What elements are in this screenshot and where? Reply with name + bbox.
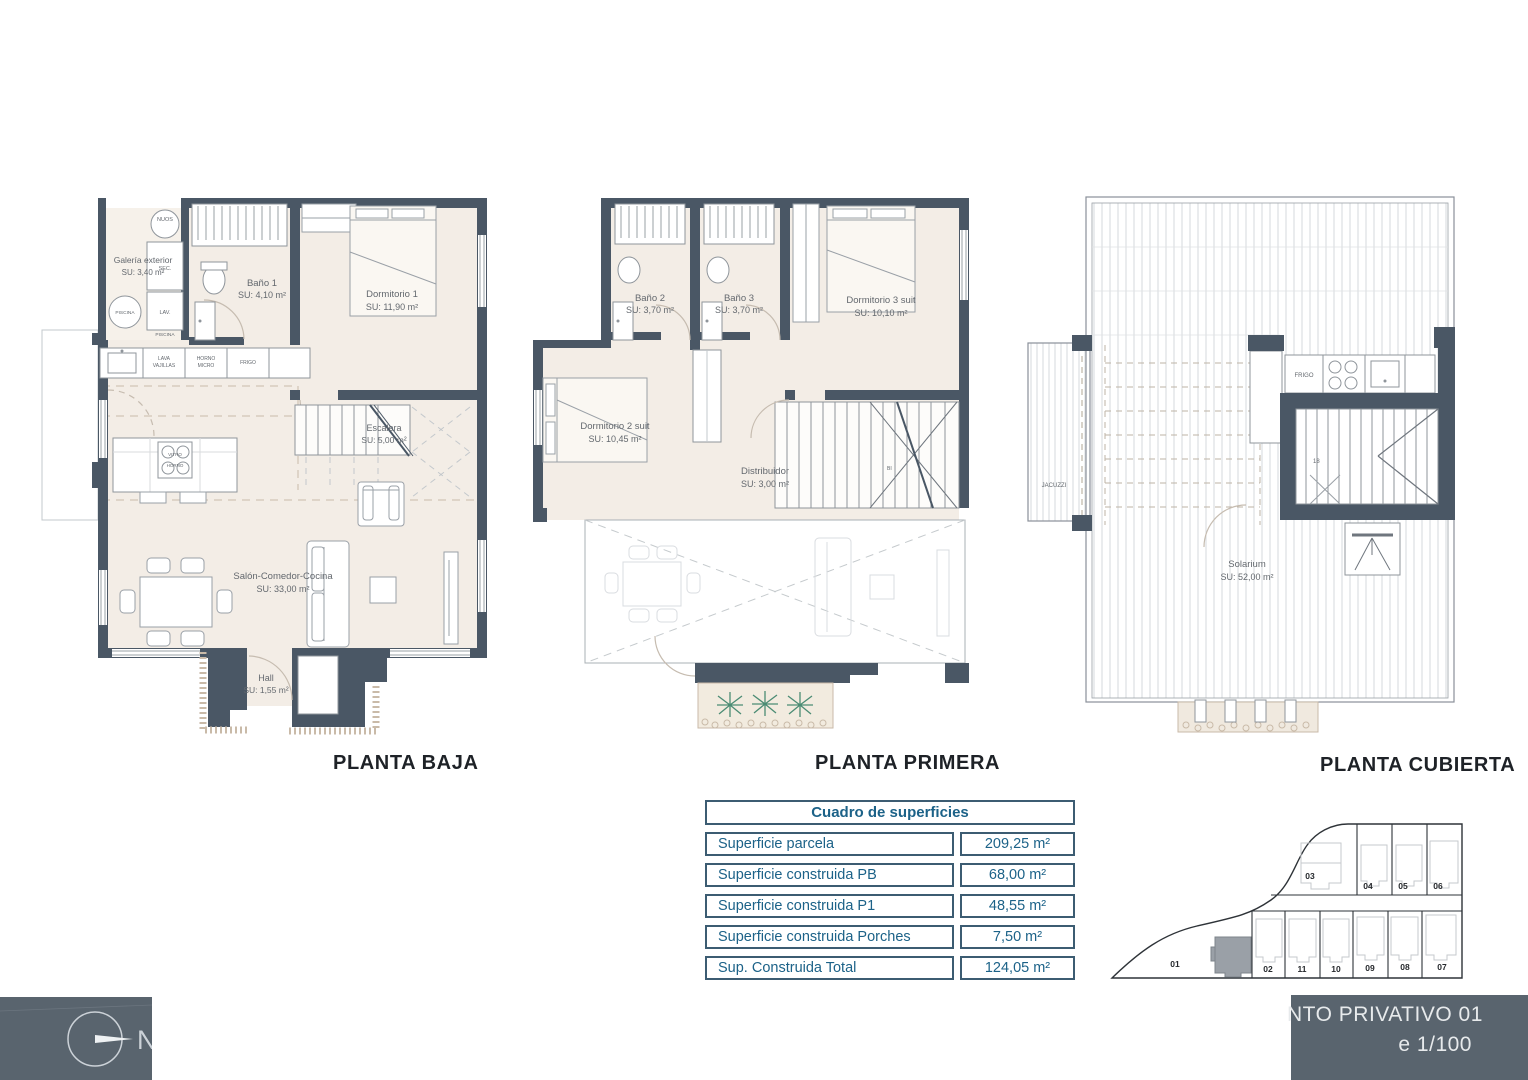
title-block-name: NTO PRIVATIVO 01 (1287, 1003, 1472, 1027)
label-piscina-b: PISCINA (155, 332, 175, 338)
plot-11: 11 (1298, 964, 1307, 974)
row-label: Superficie construida PB (705, 863, 954, 887)
plot-04: 04 (1363, 881, 1373, 891)
label-vajillas: VAJILLAS (153, 363, 176, 369)
plot-03: 03 (1305, 871, 1315, 881)
surface-table: Cuadro de superficies Superficie parcela… (705, 800, 1075, 980)
room-distribuidor-area: SU: 3,00 m² (741, 479, 789, 489)
label-micro: MICRO (198, 363, 215, 369)
label-vitro-horno: HORNO (167, 463, 184, 468)
room-distribuidor-name: Distribuidor (741, 466, 789, 477)
planta-cubierta-drawing: JACUZZI FRIGO (1010, 195, 1470, 740)
label-frigo: FRIGO (240, 360, 256, 366)
label-piscina-a: PISCINA (115, 310, 135, 316)
surface-table-title: Cuadro de superficies (705, 800, 1075, 825)
room-bano2-area: SU: 3,70 m² (626, 305, 674, 315)
label-horno: HORNO (197, 356, 216, 362)
title-block-scale: e 1/100 (1291, 1033, 1472, 1057)
room-dorm1-area: SU: 11,90 m² (366, 302, 418, 312)
label-vitro: VITRO (168, 452, 182, 457)
room-bano1-name: Baño 1 (247, 278, 277, 289)
planta-primera-drawing: BI Baño 2 SU: 3,70 m² Baño 3 SU: (525, 190, 975, 735)
site-boundary (1112, 824, 1462, 978)
title-planta-primera: PLANTA PRIMERA (815, 752, 965, 775)
table-row: Superficie construida PB 68,00 m² (705, 863, 1075, 887)
row-value: 68,00 m² (960, 863, 1075, 887)
plot-02: 02 (1263, 964, 1273, 974)
room-salon-area: SU: 33,00 m² (256, 584, 309, 594)
compass-panel: N (0, 997, 152, 1080)
plot-09: 09 (1365, 963, 1375, 973)
plot-05: 05 (1398, 881, 1408, 891)
panel-scratch-line (0, 1005, 152, 1011)
room-escalera-area: SU: 5,00 m² (361, 435, 407, 445)
title-block-panel: NTO PRIVATIVO 01 e 1/100 (1291, 995, 1528, 1080)
primera-stairs: BI (775, 402, 959, 508)
stair-note: BI (887, 466, 892, 472)
label-lava: LAVA (158, 356, 171, 362)
compass-needle-icon (95, 1035, 133, 1043)
label-step-18: 18 (1313, 459, 1320, 465)
room-bano3-area: SU: 3,70 m² (715, 305, 763, 315)
plot-01: 01 (1170, 959, 1180, 969)
room-dorm2-name: Dormitorio 2 suit (580, 421, 650, 432)
planta-baja-drawing: NUOS SEC. LAV. PISCINA PISCINA Galería e… (40, 190, 490, 750)
room-hall-area: SU: 1,55 m² (243, 685, 289, 695)
featured-plot-house (1211, 937, 1251, 977)
room-bano2-name: Baño 2 (635, 293, 665, 304)
room-bano3-name: Baño 3 (724, 293, 754, 304)
room-dorm3-name: Dormitorio 3 suit (846, 295, 916, 306)
table-row: Superficie construida Porches 7,50 m² (705, 925, 1075, 949)
room-dorm3-area: SU: 10,10 m² (854, 308, 907, 318)
compass-north-label: N (137, 1025, 152, 1055)
row-label: Superficie construida Porches (705, 925, 954, 949)
room-galeria-area: SU: 3,40 m² (122, 268, 165, 277)
table-row: Superficie parcela 209,25 m² (705, 832, 1075, 856)
label-roof-frigo: FRIGO (1295, 373, 1314, 379)
row-label: Superficie parcela (705, 832, 954, 856)
hall-closet (298, 656, 338, 714)
room-galeria-name: Galería exterior (114, 255, 173, 265)
plot-08: 08 (1400, 962, 1410, 972)
plot-10: 10 (1331, 964, 1341, 974)
dorm2-furniture (543, 378, 647, 462)
room-bano1-area: SU: 4,10 m² (238, 290, 286, 300)
label-lav: LAV. (159, 310, 170, 316)
title-planta-cubierta: PLANTA CUBIERTA (1320, 754, 1480, 777)
planter (698, 683, 833, 728)
distribuidor-wardrobe (693, 350, 721, 442)
table-row: Superficie construida P1 48,55 m² (705, 894, 1075, 918)
void-terrace (585, 520, 965, 663)
room-solarium-area: SU: 52,00 m² (1220, 572, 1273, 582)
room-solarium-name: Solarium (1228, 559, 1266, 570)
label-jacuzzi: JACUZZI (1042, 483, 1067, 489)
plot-07: 07 (1437, 962, 1447, 972)
site-plan: 01 02 03 04 05 06 07 08 09 10 11 (1105, 815, 1465, 995)
room-dorm2-area: SU: 10,45 m² (588, 434, 641, 444)
row-value: 7,50 m² (960, 925, 1075, 949)
table-row: Sup. Construida Total 124,05 m² (705, 956, 1075, 980)
room-hall-name: Hall (258, 673, 274, 683)
entry-steps (1178, 700, 1318, 732)
jacuzzi-area: JACUZZI (1028, 343, 1090, 521)
roof-access-hatch (1345, 523, 1400, 575)
row-value: 209,25 m² (960, 832, 1075, 856)
side-terrace (42, 330, 98, 520)
armchair (358, 482, 404, 526)
plan-sheet: NUOS SEC. LAV. PISCINA PISCINA Galería e… (0, 0, 1528, 1080)
label-nuos: NUOS (157, 217, 173, 223)
title-planta-baja: PLANTA BAJA (333, 752, 473, 775)
room-salon-name: Salón-Comedor-Cocina (233, 571, 333, 582)
row-value: 48,55 m² (960, 894, 1075, 918)
row-label: Superficie construida P1 (705, 894, 954, 918)
plot-06: 06 (1433, 881, 1443, 891)
room-escalera-name: Escalera (366, 423, 401, 433)
room-dorm1-name: Dormitorio 1 (366, 289, 418, 300)
roof-stairs: 18 (1296, 409, 1438, 504)
row-value: 124,05 m² (960, 956, 1075, 980)
row-label: Sup. Construida Total (705, 956, 954, 980)
